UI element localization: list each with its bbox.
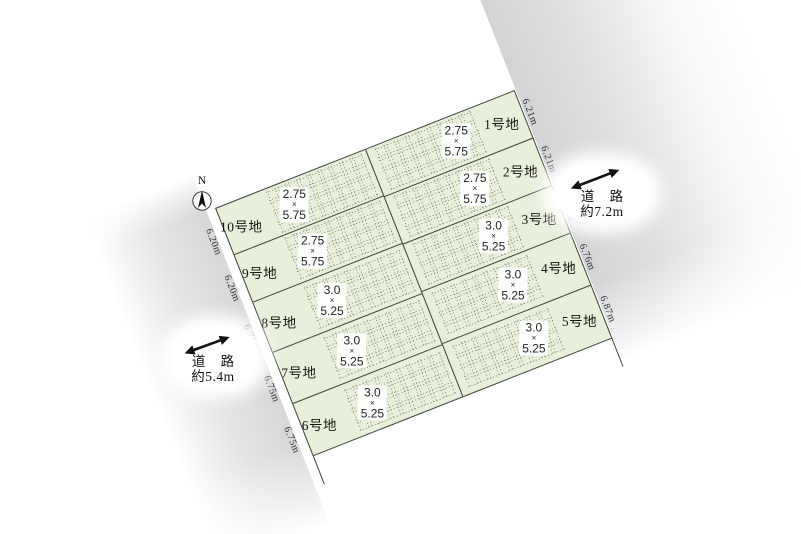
plan-dimensions-badge: 2.75×5.75 (461, 171, 490, 206)
plan-dimension-value: 5.75 (301, 256, 324, 268)
plan-dimension-value: 2.75 (301, 235, 324, 247)
boundary-extension-southeast (612, 338, 624, 366)
lot-name-label: 5号地 (562, 310, 597, 330)
lot-name-label: 1号地 (484, 113, 519, 133)
edge-dimension-label: 6.20m (222, 274, 242, 304)
plan-dimension-value: 5.75 (282, 209, 305, 221)
edge-dimension-label: 6.75m (261, 374, 281, 404)
plan-dimensions-badge: 3.0×5.25 (357, 385, 386, 420)
plan-dimension-value: 2.75 (282, 188, 305, 200)
plan-dimensions-badge: 2.75×5.75 (298, 234, 327, 269)
lot-name-label: 6号地 (302, 413, 337, 433)
plan-dimensions-badge: 3.0×5.25 (499, 268, 528, 303)
plan-dimension-value: 5.25 (482, 240, 505, 252)
plan-dimensions-badge: 2.75×5.75 (279, 187, 308, 222)
plan-dimensions-badge: 3.0×5.25 (520, 320, 549, 355)
plan-dimension-value: 5.25 (523, 342, 546, 354)
plan-dimension-value: 3.0 (320, 284, 343, 296)
plan-dimensions-badge: 3.0×5.25 (479, 218, 508, 253)
road-label-west: 道 路 約5.4m (168, 356, 258, 383)
plan-dimension-value: 3.0 (523, 321, 546, 333)
north-label: N (187, 176, 217, 187)
lot-name-label: 2号地 (503, 160, 538, 180)
plan-dimensions-badge: 3.0×5.25 (337, 334, 366, 369)
road-name-east: 道 路 (556, 191, 648, 204)
lot-name-label: 10号地 (220, 215, 263, 235)
boundary-extension-southwest (313, 456, 325, 484)
plan-dimension-value: 5.25 (360, 407, 383, 419)
plan-dimension-value: 3.0 (482, 219, 505, 231)
plan-dimension-value: 2.75 (464, 172, 487, 184)
plan-dimension-value: 2.75 (445, 124, 468, 136)
lot-name-label: 8号地 (261, 311, 296, 331)
plan-dimension-value: 3.0 (340, 335, 363, 347)
compass-needle-icon (189, 187, 215, 213)
plan-dimension-value: 5.25 (502, 290, 525, 302)
lot-name-label: 7号地 (281, 362, 316, 382)
road-name-west: 道 路 (168, 356, 258, 369)
plan-dimension-value: 5.25 (340, 356, 363, 368)
lot-name-label: 3号地 (522, 208, 557, 228)
lot-name-label: 4号地 (541, 258, 576, 278)
edge-dimension-label: 6.75m (281, 425, 301, 455)
road-width-east: 約7.2m (556, 205, 648, 218)
plan-dimension-value: 5.75 (445, 145, 468, 157)
road-label-east: 道 路 約7.2m (556, 191, 648, 218)
plan-dimensions-badge: 2.75×5.75 (442, 123, 471, 158)
site-plan-canvas: 2.75×5.7510号地 2.75×5.759号地 3.0×5.258号地 3… (0, 0, 801, 534)
plan-dimension-value: 3.0 (360, 386, 383, 398)
plan-dimension-value: 3.0 (502, 269, 525, 281)
plan-dimension-value: 5.75 (464, 193, 487, 205)
plan-dimension-value: 5.25 (320, 305, 343, 317)
north-compass: N (187, 176, 217, 213)
road-width-west: 約5.4m (168, 370, 258, 383)
plan-dimensions-badge: 3.0×5.25 (317, 283, 346, 318)
land-parcel: 2.75×5.7510号地 2.75×5.759号地 3.0×5.258号地 3… (215, 90, 612, 456)
lot-name-label: 9号地 (242, 262, 277, 282)
